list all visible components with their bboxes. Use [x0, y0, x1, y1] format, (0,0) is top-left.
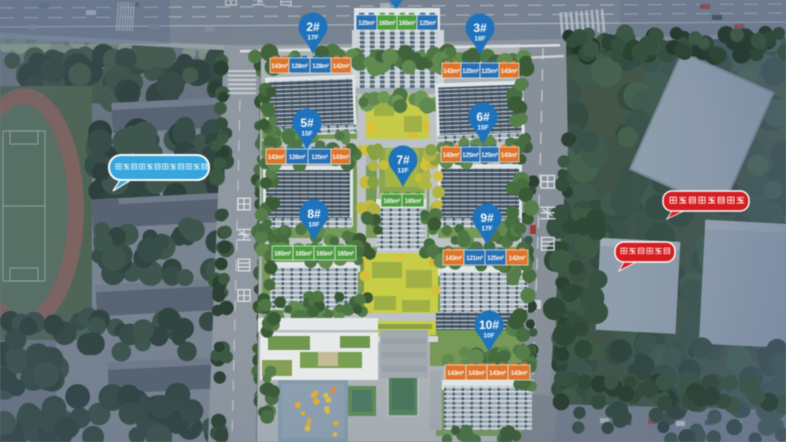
svg-text:165m²: 165m²: [405, 198, 422, 205]
svg-text:8#: 8#: [307, 207, 321, 221]
svg-text:121m²: 121m²: [466, 255, 483, 262]
svg-text:7#: 7#: [396, 153, 410, 167]
svg-text:143m²: 143m²: [468, 370, 485, 377]
svg-text:9#: 9#: [480, 211, 494, 225]
svg-text:12F: 12F: [397, 168, 408, 175]
svg-text:143m²: 143m²: [489, 370, 506, 377]
svg-text:10F: 10F: [308, 222, 319, 229]
svg-text:125m²: 125m²: [462, 68, 479, 75]
svg-text:143m²: 143m²: [268, 154, 285, 161]
svg-text:5#: 5#: [300, 116, 314, 130]
svg-text:125m²: 125m²: [462, 152, 479, 159]
svg-text:165m²: 165m²: [337, 251, 354, 258]
svg-text:2#: 2#: [306, 20, 320, 34]
svg-text:143m²: 143m²: [511, 370, 528, 377]
svg-text:6#: 6#: [476, 110, 490, 124]
svg-text:143m²: 143m²: [443, 152, 460, 159]
svg-text:128m²: 128m²: [291, 63, 308, 70]
svg-text:143m²: 143m²: [501, 152, 518, 159]
svg-text:165m²: 165m²: [274, 251, 291, 258]
svg-text:125m²: 125m²: [358, 20, 375, 27]
svg-text:126m²: 126m²: [289, 154, 306, 161]
svg-text:3#: 3#: [473, 21, 487, 35]
svg-text:143m²: 143m²: [443, 68, 460, 75]
svg-text:10F: 10F: [483, 333, 494, 340]
svg-text:165m²: 165m²: [383, 198, 400, 205]
svg-text:165m²: 165m²: [316, 251, 333, 258]
svg-text:125m²: 125m²: [481, 152, 498, 159]
svg-text:143m²: 143m²: [271, 63, 288, 70]
svg-text:18F: 18F: [474, 36, 485, 43]
svg-text:143m²: 143m²: [501, 68, 518, 75]
svg-text:165m²: 165m²: [379, 20, 396, 27]
svg-text:143m²: 143m²: [445, 255, 462, 262]
svg-text:15F: 15F: [477, 125, 488, 132]
svg-text:165m²: 165m²: [295, 251, 312, 258]
svg-text:17F: 17F: [307, 35, 318, 42]
svg-text:143m²: 143m²: [447, 370, 464, 377]
svg-text:17F: 17F: [481, 226, 492, 233]
svg-text:15F: 15F: [301, 131, 312, 138]
svg-text:125m²: 125m²: [311, 154, 328, 161]
svg-text:142m²: 142m²: [509, 255, 526, 262]
svg-text:125m²: 125m²: [481, 68, 498, 75]
svg-text:165m²: 165m²: [399, 20, 416, 27]
svg-text:10#: 10#: [479, 318, 499, 332]
svg-text:143m²: 143m²: [332, 154, 349, 161]
svg-text:128m²: 128m²: [312, 63, 329, 70]
svg-text:142m²: 142m²: [333, 63, 350, 70]
svg-text:125m²: 125m²: [487, 255, 504, 262]
svg-text:125m²: 125m²: [419, 20, 436, 27]
